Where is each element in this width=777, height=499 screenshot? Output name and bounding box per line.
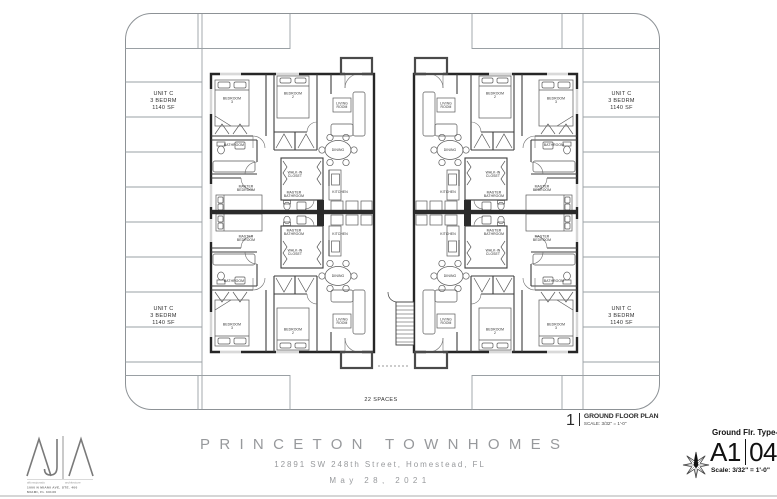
room-label-bedroom2: BEDROOM2 [486,327,504,335]
room-label-dining: DINING [332,148,345,152]
building [211,58,577,368]
unit-label: UNIT C3 BEDRM1140 SF [608,306,635,326]
drawing-title: GROUND FLOOR PLAN [584,413,659,421]
room-label-master_bedroom: MASTERBEDROOM [533,184,551,192]
firm-name-right: architecture [65,480,81,484]
room-label-bedroom3: BEDROOM3 [547,322,565,330]
sheet-date: May 28, 2021 [140,476,620,485]
room-label-bathroom: BATHROOM [224,279,244,283]
room-label-bedroom2: BEDROOM2 [284,327,302,335]
stair [388,292,414,345]
unit-label: UNIT C3 BEDRM1140 SF [608,91,635,111]
site-boundary [126,14,660,410]
room-label-bathroom: BATHROOM [544,279,564,283]
parking-layout [126,14,660,410]
room-label-kitchen: KITCHEN [332,190,348,194]
firm-name-left: alfonsojurado [27,480,45,484]
room-label-master_bathroom: MASTERBATHROOM [484,190,504,198]
room-label-living_room: LIVINGROOM [440,101,452,109]
unit-label: UNIT C3 BEDRM1140 SF [150,91,177,111]
drawing-sheet: UNIT C3 BEDRM1140 SFUNIT C3 BEDRM1140 SF… [0,0,777,499]
architect-logo-block: alfonsojurado architecture 1000 N MIAMI … [24,434,134,498]
project-address: 12891 SW 248th Street, Homestead, FL [140,460,620,469]
room-label-dining: DINING [332,274,345,278]
room-label-master_bedroom: MASTERBEDROOM [237,234,255,242]
room-label-living_room: LIVINGROOM [440,317,452,325]
parking-stall-lines [126,82,660,362]
sheet-suffix: 04 [749,438,777,466]
sheet-number: A1 04 [710,438,777,466]
party-wall-right [414,210,577,214]
project-title-block: PRINCETON TOWNHOMES 12891 SW 248th Stree… [140,436,620,485]
room-label-walkin_closet: WALK-INCLOSET [486,248,501,256]
room-label-dining: DINING [444,148,457,152]
architect-logo: alfonsojurado architecture 1000 N MIAMI … [24,434,134,498]
room-label-bathroom: BATHROOM [224,143,244,147]
room-label-kitchen: KITCHEN [440,232,456,236]
room-label-bedroom3: BEDROOM3 [223,322,241,330]
drawing-number: 1 [566,413,579,429]
sheet-name: Ground Flr. Type-C [712,428,777,437]
room-label-living_room: LIVINGROOM [336,317,348,325]
room-label-walkin_closet: WALK-INCLOSET [486,170,501,178]
north-compass-icon [680,448,712,482]
room-label-bedroom2: BEDROOM2 [486,91,504,99]
drawing-scale: SCALE: 3/32" = 1'-0" [584,421,659,426]
room-label-master_bathroom: MASTERBATHROOM [484,228,504,236]
room-label-master_bathroom: MASTERBATHROOM [284,228,304,236]
drawing-callout: 1 GROUND FLOOR PLAN SCALE: 3/32" = 1'-0" [566,413,658,429]
party-wall-left [211,210,374,214]
floor-plan-canvas: UNIT C3 BEDRM1140 SFUNIT C3 BEDRM1140 SF… [0,0,777,430]
room-label-master_bathroom: MASTERBATHROOM [284,190,304,198]
room-label-dining: DINING [444,274,457,278]
room-label-bedroom3: BEDROOM3 [223,96,241,104]
room-label-master_bedroom: MASTERBEDROOM [237,184,255,192]
sheet-bottom-edge [0,495,777,497]
room-label-kitchen: KITCHEN [332,232,348,236]
room-label-kitchen: KITCHEN [440,190,456,194]
room-label-living_room: LIVINGROOM [336,101,348,109]
logo-letters-icon [27,439,93,476]
room-label-master_bedroom: MASTERBEDROOM [533,234,551,242]
room-label-walkin_closet: WALK-INCLOSET [288,248,303,256]
sheet-scale: Scale: 3/32" = 1'-0" [711,467,777,474]
room-label-bedroom2: BEDROOM2 [284,91,302,99]
project-title: PRINCETON TOWNHOMES [149,436,620,453]
unit-label: UNIT C3 BEDRM1140 SF [150,306,177,326]
room-label-walkin_closet: WALK-INCLOSET [288,170,303,178]
room-label-bedroom3: BEDROOM3 [547,96,565,104]
sheet-number-block: Ground Flr. Type-C A1 04 Scale: 3/32" = … [680,428,777,474]
room-label-bathroom: BATHROOM [544,143,564,147]
title-bar: alfonsojurado architecture 1000 N MIAMI … [0,410,777,499]
sheet-series: A1 [710,438,741,466]
parking-count-label: 22 SPACES [364,397,397,403]
